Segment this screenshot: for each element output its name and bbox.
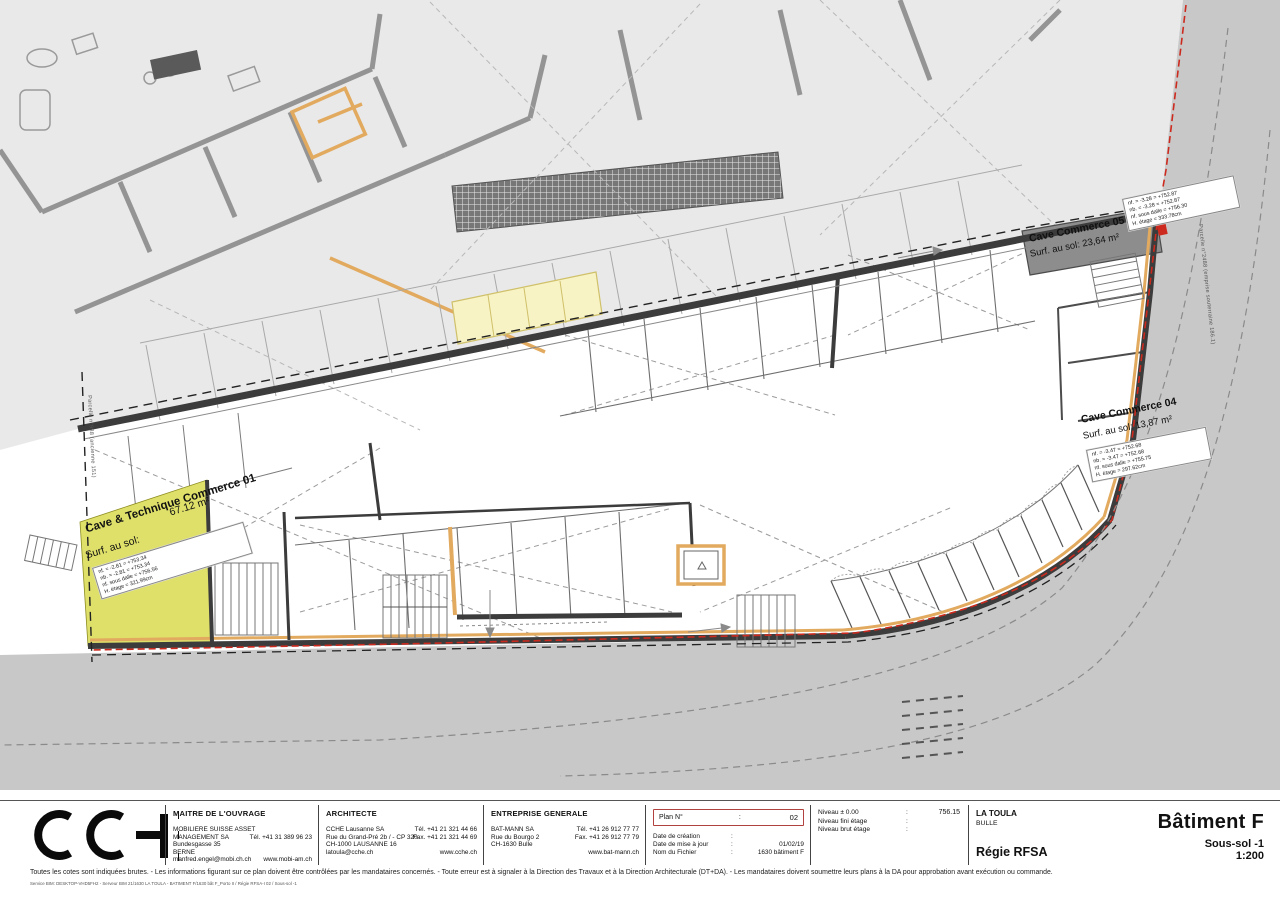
contractor-tel: Tél. +41 26 912 77 77	[577, 826, 639, 834]
owner-block: MAITRE DE L'OUVRAGE MOBILIERE SUISSE ASS…	[165, 805, 318, 865]
architect-street: Rue du Grand-Pré 2b / - CP 320	[326, 834, 418, 841]
general-note: Toutes les cotes sont indiquées brutes. …	[30, 869, 1270, 876]
colon: :	[906, 809, 908, 818]
file-path-note: Service BIM: DESKTOP-VHD5FH2 - Serveur B…	[30, 881, 1030, 886]
cche-logo	[14, 803, 179, 863]
levels-block: Niveau ± 0.00 : Niveau fini étage : Nive…	[810, 805, 968, 865]
sheet-title-block: Bâtiment F Sous-sol -1 1:200	[1098, 805, 1270, 865]
sheet-scale: 1:200	[1105, 850, 1264, 862]
architect-tel: Tél. +41 21 321 44 66	[415, 826, 477, 834]
colon: :	[731, 841, 733, 849]
owner-email: manfred.engel@mobi.ch.ch	[173, 856, 251, 863]
date-creation-label: Date de création	[653, 833, 731, 841]
title-block: MAITRE DE L'OUVRAGE MOBILIERE SUISSE ASS…	[0, 800, 1280, 869]
datum-value: 756.15	[939, 809, 960, 816]
contractor-fax: Fax. +41 26 912 77 79	[575, 834, 639, 842]
plan-number-colon: :	[739, 814, 741, 821]
level-fini-label: Niveau fini étage	[818, 818, 906, 827]
owner-tel: Tél. +41 31 389 96 23	[250, 834, 312, 842]
filename-row: Nom du Fichier : 1630 bâtiment F	[653, 849, 804, 857]
date-update-label: Date de mise à jour	[653, 841, 731, 849]
architect-name: CCHE Lausanne SA	[326, 826, 384, 833]
contractor-name: BAT-MANN SA	[491, 826, 534, 833]
colon: :	[731, 849, 733, 857]
colon: :	[906, 818, 908, 827]
colon: :	[906, 826, 908, 835]
owner-web: www.mobi-am.ch	[263, 856, 312, 864]
owner-name1: MOBILIERE SUISSE ASSET	[173, 826, 312, 834]
level-fini-row: Niveau fini étage :	[818, 818, 962, 827]
date-update-value: 01/02/19	[779, 841, 804, 849]
architect-web: www.cche.ch	[440, 849, 477, 857]
owner-name2: MANAGEMENT SA	[173, 834, 229, 841]
plan-info-block: Plan N° : 02 Date de création : Date de …	[645, 805, 810, 865]
owner-city: BERNE	[173, 849, 312, 857]
drawing-sheet: Cave & Technique Commerce 01 67.12 m² Su…	[0, 0, 1280, 905]
colon: :	[731, 833, 733, 841]
contractor-street: Rue du Bourgo 2	[491, 834, 539, 841]
level-datum-label: Niveau ± 0.00	[818, 809, 906, 818]
architect-fax: Fax. +41 21 321 44 69	[413, 834, 477, 842]
project-block: LA TOULA BULLE Régie RFSA	[968, 805, 1098, 865]
level-brut-row: Niveau brut étage :	[818, 826, 962, 835]
sheet-building: Bâtiment F	[1105, 811, 1264, 834]
filename-label: Nom du Fichier	[653, 849, 731, 857]
elevator	[678, 546, 724, 584]
architect-email: latoula@cche.ch	[326, 849, 373, 856]
level-brut-label: Niveau brut étage	[818, 826, 906, 835]
filename-value: 1630 bâtiment F	[758, 849, 804, 857]
architect-city: CH-1000 LAUSANNE 16	[326, 841, 477, 849]
owner-street: Bundesgasse 35	[173, 841, 312, 849]
contractor-header: ENTREPRISE GENERALE	[491, 809, 639, 818]
architect-block: ARCHITECTE CCHE Lausanne SA Tél. +41 21 …	[318, 805, 483, 865]
architect-header: ARCHITECTE	[326, 809, 477, 818]
project-client: Régie RFSA	[976, 845, 1048, 859]
date-creation-row: Date de création :	[653, 833, 804, 841]
plan-number-value: 02	[790, 813, 798, 822]
contractor-block: ENTREPRISE GENERALE BAT-MANN SA Tél. +41…	[483, 805, 645, 865]
contractor-city: CH-1630 Bulle	[491, 841, 639, 849]
project-name: LA TOULA	[976, 809, 1092, 818]
contractor-web: www.bat-mann.ch	[588, 849, 639, 857]
date-update-row: Date de mise à jour : 01/02/19	[653, 841, 804, 849]
project-city: BULLE	[976, 820, 1092, 827]
owner-header: MAITRE DE L'OUVRAGE	[173, 809, 312, 818]
plan-number-box: Plan N° : 02	[653, 809, 804, 826]
sheet-floor: Sous-sol -1	[1105, 838, 1264, 850]
plan-number-label: Plan N°	[659, 814, 683, 821]
